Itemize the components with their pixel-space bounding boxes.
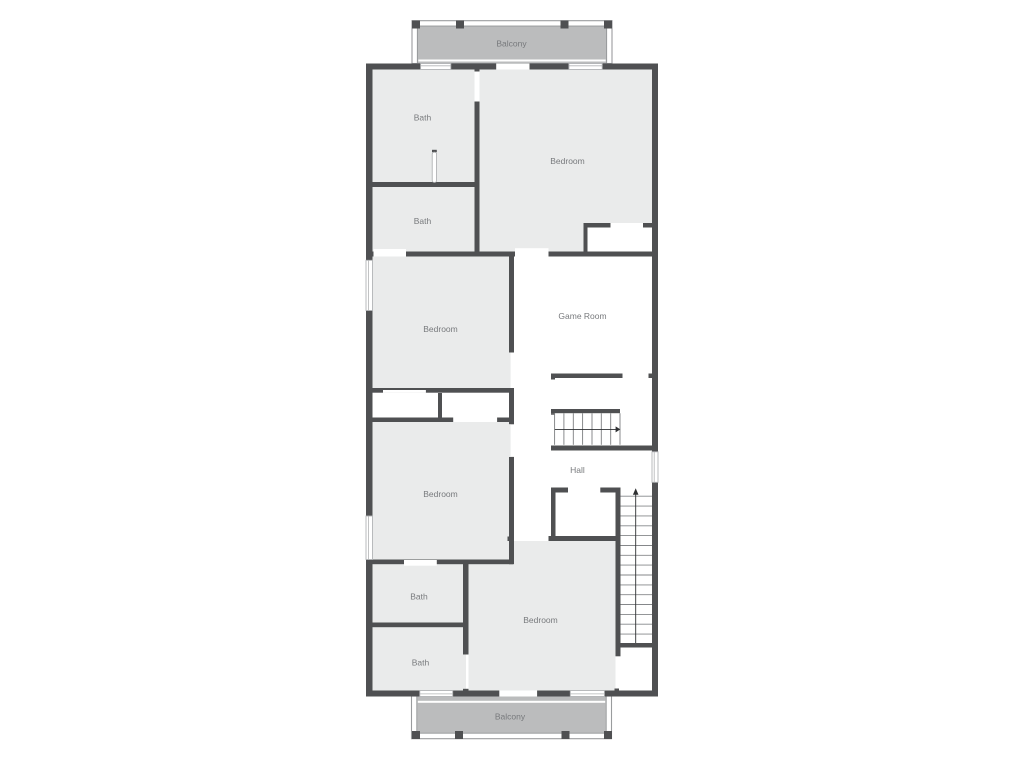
svg-text:Bedroom: Bedroom (423, 324, 458, 334)
svg-text:Balcony: Balcony (496, 39, 527, 49)
svg-text:Bath: Bath (414, 216, 432, 226)
svg-text:Bedroom: Bedroom (523, 615, 558, 625)
svg-text:Bath: Bath (412, 658, 430, 668)
svg-text:Bedroom: Bedroom (423, 489, 458, 499)
svg-text:Bath: Bath (414, 113, 432, 123)
svg-text:Bedroom: Bedroom (550, 156, 585, 166)
svg-text:Bath: Bath (410, 592, 428, 602)
svg-text:Balcony: Balcony (495, 712, 526, 722)
svg-text:Hall: Hall (570, 465, 585, 475)
svg-text:Game Room: Game Room (558, 311, 606, 321)
